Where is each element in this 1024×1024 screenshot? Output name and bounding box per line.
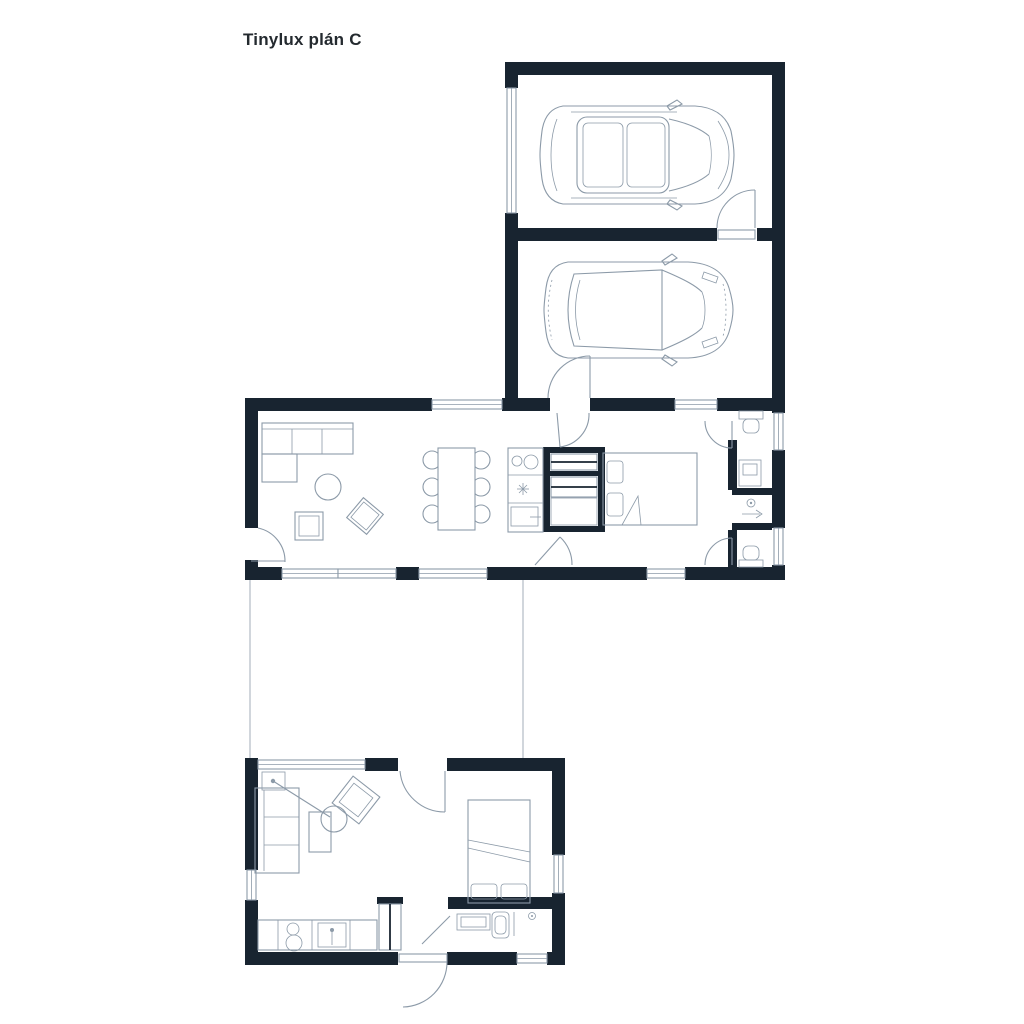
toilet (739, 411, 763, 419)
guest-house (245, 758, 565, 1007)
window (774, 528, 783, 565)
wardrobes (551, 454, 597, 525)
dining-set (423, 448, 490, 530)
window (258, 760, 365, 769)
sofa (262, 423, 353, 482)
pillow (607, 493, 623, 516)
side-table (347, 498, 384, 535)
kitchen-unit (508, 448, 543, 532)
guest-back-door (399, 954, 447, 1007)
window (517, 954, 547, 963)
entry-door (557, 413, 589, 447)
guest-toilet (492, 912, 509, 938)
oven (511, 507, 541, 526)
shower (742, 499, 762, 518)
cooktop-icon (517, 483, 529, 495)
house-walls (245, 398, 785, 580)
garage-divider-door (717, 190, 755, 239)
stove-burner (287, 923, 299, 935)
window (282, 569, 338, 578)
pillow (607, 461, 623, 483)
guest-closet (379, 904, 401, 950)
guest-entry-door (400, 771, 445, 812)
garage-window-left (507, 88, 516, 213)
guest-sofa (255, 788, 299, 873)
pillow (501, 884, 527, 899)
coffee-table (315, 474, 341, 500)
window (247, 870, 256, 900)
guest-armchair (332, 776, 380, 824)
guest-kitchen (258, 920, 377, 951)
garage-to-house-door (548, 356, 590, 398)
double-bed (603, 453, 697, 525)
main-house (245, 398, 785, 580)
bathroom-sink (457, 914, 490, 930)
guest-bench (309, 812, 331, 852)
floor-plan-canvas: Tinylux plán C (0, 0, 1024, 1024)
kitchen-sink (512, 456, 522, 466)
guest-bed (468, 800, 530, 903)
garage (505, 62, 785, 398)
armchair (295, 512, 323, 540)
window (419, 569, 487, 578)
stove-burner (286, 935, 302, 951)
floor-lamp (262, 772, 347, 832)
guest-bathroom (422, 912, 536, 944)
window (774, 413, 783, 450)
floor-plan-svg (0, 0, 1024, 1024)
corridor-door-bottom (535, 537, 572, 565)
guest-sink (318, 923, 346, 947)
car-1 (540, 100, 734, 210)
car-2 (544, 254, 733, 366)
window (432, 400, 502, 409)
window (338, 569, 396, 578)
window (675, 400, 717, 409)
toilet (739, 560, 763, 567)
terrace-door (251, 528, 285, 562)
terrace-outline (250, 580, 523, 758)
window (554, 855, 563, 893)
bathroom-door (422, 916, 450, 944)
pillow (471, 884, 497, 899)
window (647, 569, 685, 578)
